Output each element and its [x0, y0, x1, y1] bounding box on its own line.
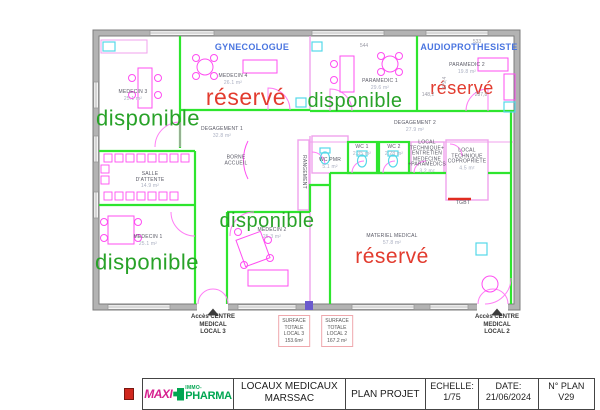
logo-maxi-text: MAXI [144, 387, 172, 401]
status-materiel-medical: réservé [355, 245, 429, 269]
date-label: DATE: [496, 379, 522, 391]
room-degagement-1: DEGAGEMENT 132.8 m² [201, 127, 243, 139]
room-paramedic-1: PARAMEDIC 129.6 m² [362, 79, 398, 91]
status-medecin-1: disponible [95, 251, 199, 276]
room-medecin-4: MEDECIN 426.1 m² [218, 74, 247, 86]
entrance-arrow-icon [207, 309, 219, 316]
floor-plan: disponibleréservédisponibleréservédispon… [0, 0, 600, 400]
dim-544: 544 [360, 44, 368, 50]
room-salle-attente: SALLE D'ATTENTE14.9 m² [136, 172, 165, 190]
room-wc-2: WC 22.28 m² [385, 145, 403, 157]
scale-cell: ECHELLE: 1/75 [425, 379, 478, 409]
room-degagement-2: DEGAGEMENT 227.9 m² [394, 121, 436, 133]
room-wc-pmr: WC PMR5.1 m² [319, 158, 341, 170]
logo-pharma-text: PHARMA [185, 391, 231, 402]
label-gynecologue: GYNECOLOGUE [215, 42, 289, 52]
document-type: PLAN PROJET [351, 389, 419, 400]
room-materiel-medical: MATERIEL MEDICAL57.8 m² [366, 234, 417, 246]
title-block: MAXI IMMO- PHARMA LOCAUX MEDICAUX MARSSA… [142, 378, 595, 410]
status-paramedic-1: disponible [307, 90, 402, 112]
project-name: LOCAUX MEDICAUX MARSSAC [241, 379, 338, 404]
dim-148-2: 148,2 [422, 93, 435, 99]
room-medecin-3: MEDECIN 325.1 m² [118, 90, 147, 102]
dim-533: 533 [473, 40, 481, 46]
plan-number-label: N° PLAN [548, 379, 584, 391]
scale-label: ECHELLE: [430, 379, 474, 391]
floor-plan-page: { "plan": { "status_labels": [ {"name":"… [0, 0, 600, 400]
surface-totale-local-3: SURFACE TOTALE LOCAL 3 153.6m² [278, 315, 310, 347]
date-value: 21/06/2024 [486, 391, 531, 402]
access-local-2: Accès CENTRE MEDICAL LOCAL 2 [475, 314, 519, 337]
scale-value: 1/75 [443, 391, 461, 402]
plan-number-cell: N° PLAN V29 [538, 379, 594, 409]
document-type-cell: PLAN PROJET [345, 379, 425, 409]
surface-totale-local-2: SURFACE TOTALE LOCAL 2 167.2 m² [321, 315, 353, 347]
dim-379-4: 379,4 [443, 77, 449, 90]
room-medecin-2: MEDECIN 225.3 m² [257, 228, 286, 240]
room-borne-accueil: BORNE ACCUEIL [224, 155, 247, 166]
pharmacy-cross-icon [173, 388, 184, 401]
logo-maxipharma: MAXI IMMO- PHARMA [143, 379, 233, 409]
project-name-cell: LOCAUX MEDICAUX MARSSAC [233, 379, 345, 409]
room-rangement: RANGEMENT [300, 155, 306, 189]
corner-red-mark [124, 388, 134, 400]
room-medecin-1: MEDECIN 125.1 m² [133, 235, 162, 247]
room-local-technique-copropriete: LOCAL TECHNIQUE COPROPRIETE4.5 m² [448, 148, 487, 171]
wall-joint-mark [305, 301, 313, 310]
room-wc-1: WC 12.35 m² [353, 145, 371, 157]
dim-287-8: 287,8 [475, 93, 488, 99]
status-medecin-3: disponible [96, 107, 200, 132]
entrance-arrow-icon [491, 309, 503, 316]
label-audioprothesiste: AUDIOPROTHESISTE [420, 42, 517, 52]
date-cell: DATE: 21/06/2024 [478, 379, 537, 409]
room-paramedic-2: PARAMEDIC 219.8 m² [449, 63, 485, 75]
door-arcs [155, 88, 511, 304]
status-medecin-4: réservé [206, 85, 286, 111]
access-local-3: Accès CENTRE MEDICAL LOCAL 3 [191, 314, 235, 337]
plan-number-value: V29 [558, 391, 574, 402]
room-local-technique-entretien: LOCAL TECHNIQUE+ ENTRETIEN MEDECINE +PAR… [408, 141, 446, 176]
label-tgbt: TGBT [456, 201, 470, 207]
